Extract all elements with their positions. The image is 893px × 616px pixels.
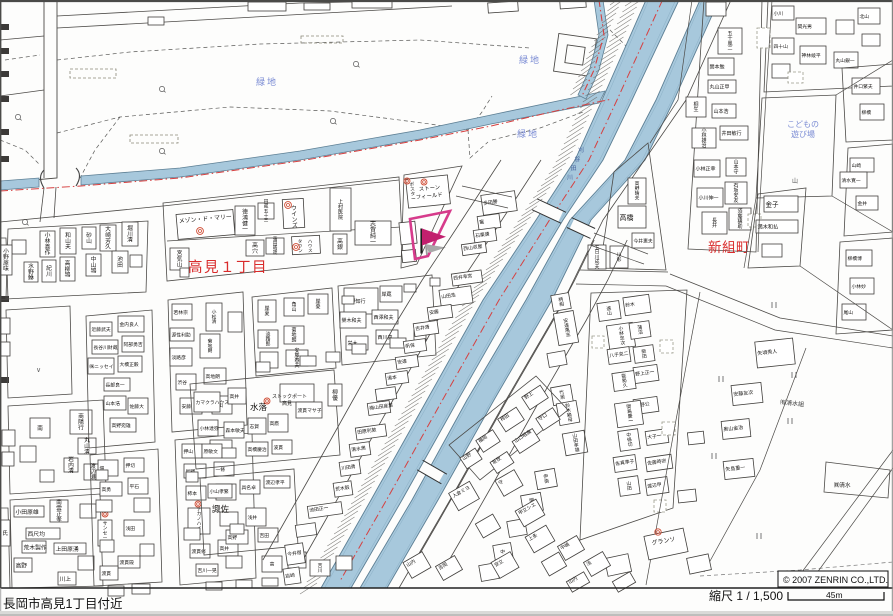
svg-text:蒲田晴筬: 蒲田晴筬 <box>273 235 278 256</box>
svg-text:須藤構助: 須藤構助 <box>737 208 742 230</box>
svg-text:地: 地 <box>530 54 539 65</box>
svg-text:高野晴夫: 高野晴夫 <box>635 180 640 201</box>
svg-text:関光男: 関光男 <box>798 23 813 30</box>
svg-text:若林宗: 若林宗 <box>174 309 189 316</box>
svg-text:緑: 緑 <box>517 128 526 139</box>
svg-text:㈱清水: ㈱清水 <box>834 481 851 489</box>
svg-text:小林喜作: 小林喜作 <box>45 231 51 256</box>
svg-text:長部良一: 長部良一 <box>106 381 125 388</box>
svg-text:浅田: 浅田 <box>126 525 136 532</box>
svg-text:高穴: 高穴 <box>252 241 258 255</box>
svg-text:波貫: 波貫 <box>274 444 284 451</box>
svg-text:金内良人: 金内良人 <box>120 321 139 328</box>
svg-text:長谷川財蔵: 長谷川財蔵 <box>94 344 118 351</box>
svg-text:近藤武夫: 近藤武夫 <box>92 326 111 333</box>
svg-text:小川: 小川 <box>774 10 784 17</box>
svg-text:柳橋: 柳橋 <box>862 109 872 116</box>
svg-text:神林綾平: 神林綾平 <box>802 52 821 59</box>
svg-text:石坂安友: 石坂安友 <box>733 183 738 204</box>
svg-text:山崎: 山崎 <box>852 162 862 169</box>
svg-text:柳優: 柳優 <box>332 388 338 402</box>
svg-text:井田敏行: 井田敏行 <box>722 130 742 137</box>
svg-text:和山夫: 和山夫 <box>65 231 71 251</box>
svg-text:岩内清: 岩内清 <box>68 455 74 475</box>
svg-text:丸山銀一: 丸山銀一 <box>836 57 855 64</box>
svg-text:柳橋博: 柳橋博 <box>848 255 863 262</box>
svg-text:山本浩: 山本浩 <box>106 400 121 407</box>
svg-text:北山: 北山 <box>860 13 870 20</box>
svg-text:岸憂: 岸憂 <box>315 298 320 310</box>
svg-text:荒木製作: 荒木製作 <box>24 543 47 551</box>
svg-text:五日川成夫: 五日川成夫 <box>595 245 600 270</box>
svg-text:高野: 高野 <box>16 561 28 569</box>
svg-text:満木和払: 満木和払 <box>758 223 779 231</box>
svg-text:渋谷: 渋谷 <box>178 379 188 386</box>
svg-text:安藤春夫: 安藤春夫 <box>294 347 299 369</box>
svg-text:尾山: 尾山 <box>844 309 854 316</box>
svg-text:菊地朗: 菊地朗 <box>291 327 296 344</box>
svg-text:上村医院: 上村医院 <box>338 197 344 221</box>
svg-text:渡貫マサ子: 渡貫マサ子 <box>298 407 322 414</box>
svg-text:桐生: 桐生 <box>693 101 698 113</box>
svg-text:吉田: 吉田 <box>260 533 270 539</box>
svg-text:小林達弥: 小林達弥 <box>200 425 219 432</box>
svg-text:阿部勇吉: 阿部勇吉 <box>124 341 143 348</box>
svg-text:岸蔵: 岸蔵 <box>382 291 392 298</box>
svg-text:榮木和夫: 榮木和夫 <box>342 317 362 324</box>
svg-text:高井: 高井 <box>220 545 230 552</box>
svg-text:上田原湧: 上田原湧 <box>56 545 79 553</box>
svg-text:金井: 金井 <box>858 200 868 207</box>
svg-text:高橋慶治: 高橋慶治 <box>248 446 267 453</box>
svg-text:高銀: 高銀 <box>337 237 343 251</box>
svg-text:高鷹: 高鷹 <box>270 420 280 427</box>
svg-text:志賀: 志賀 <box>250 423 260 430</box>
svg-text:渡貫殿: 渡貫殿 <box>120 559 135 566</box>
svg-text:高地朗: 高地朗 <box>206 373 221 380</box>
svg-text:小林妙: 小林妙 <box>852 283 867 290</box>
svg-text:淡路郎: 淡路郎 <box>265 332 270 348</box>
svg-text:緑: 緑 <box>256 76 265 87</box>
svg-text:ストックポート: ストックポート <box>272 393 307 400</box>
svg-text:高見: 高見 <box>282 400 292 407</box>
svg-text:川上: 川上 <box>60 575 72 583</box>
svg-text:小田原雄: 小田原雄 <box>16 508 39 516</box>
svg-text:安藤: 安藤 <box>182 403 192 410</box>
svg-text:小林正幸: 小林正幸 <box>696 166 716 173</box>
svg-text:小川伸一: 小川伸一 <box>699 195 719 202</box>
svg-text:柿本: 柿本 <box>188 490 198 497</box>
svg-text:清水寛一: 清水寛一 <box>842 177 861 184</box>
svg-text:高: 高 <box>270 560 275 567</box>
svg-text:小山孝繁: 小山孝繁 <box>210 488 229 495</box>
svg-text:紀川: 紀川 <box>46 264 52 278</box>
svg-text:関本勉: 関本勉 <box>710 64 725 71</box>
svg-text:南雲正孝: 南雲正孝 <box>56 498 62 523</box>
svg-text:高野: 高野 <box>228 534 238 541</box>
svg-text:岸夏: 岸夏 <box>264 305 269 317</box>
svg-text:商陽行: 商陽行 <box>78 412 84 432</box>
svg-text:高野宛雄: 高野宛雄 <box>112 422 131 429</box>
svg-text:押切: 押切 <box>126 462 136 469</box>
svg-text:押山: 押山 <box>184 448 194 455</box>
svg-text:平石: 平石 <box>130 484 140 490</box>
svg-text:氏: 氏 <box>2 529 8 537</box>
svg-text:水野鮴: 水野鮴 <box>28 262 34 282</box>
svg-text:大橋正毅: 大橋正毅 <box>120 361 139 368</box>
svg-text:宮気山: 宮気山 <box>177 249 183 269</box>
svg-text:円蔵五十三: 円蔵五十三 <box>264 199 269 222</box>
svg-text:山本守: 山本守 <box>733 159 738 176</box>
svg-text:渡貫: 渡貫 <box>102 570 112 577</box>
svg-text:堀川清: 堀川清 <box>127 224 133 244</box>
svg-text:西尺均: 西尺均 <box>28 530 46 538</box>
svg-text:五十嵐二: 五十嵐二 <box>727 31 732 52</box>
svg-text:渡辺孝平: 渡辺孝平 <box>266 479 285 486</box>
svg-text:菊地朗: 菊地朗 <box>208 338 213 355</box>
svg-text:カマクラハウス: カマクラハウス <box>196 399 230 406</box>
svg-text:こどもの: こどもの <box>787 120 819 129</box>
svg-text:地: 地 <box>267 76 276 87</box>
svg-text:今井憲夫: 今井憲夫 <box>634 237 653 244</box>
svg-text:井口繁夫: 井口繁夫 <box>854 83 873 90</box>
svg-text:西澤和夫: 西澤和夫 <box>374 314 394 321</box>
svg-text:砂山: 砂山 <box>86 231 92 245</box>
svg-text:小松清: 小松清 <box>212 309 217 326</box>
svg-text:高橋: 高橋 <box>620 213 634 222</box>
svg-text:長井: 長井 <box>712 218 717 229</box>
svg-text:山本浩: 山本浩 <box>714 108 729 115</box>
svg-text:志賀純一: 志賀純一 <box>370 220 376 246</box>
svg-text:徳鴻健一: 徳鴻健一 <box>242 208 248 233</box>
svg-text:金子: 金子 <box>766 200 780 209</box>
svg-text:南: 南 <box>37 424 43 432</box>
svg-text:淡路彦: 淡路彦 <box>172 354 187 361</box>
svg-text:遊び場: 遊び場 <box>791 129 815 139</box>
svg-text:高井: 高井 <box>230 393 240 400</box>
svg-text:山: 山 <box>792 177 798 185</box>
svg-text:具名卓: 具名卓 <box>242 484 257 491</box>
svg-text:縮尺 1 / 1,500: 縮尺 1 / 1,500 <box>709 588 783 603</box>
svg-text:高勇: 高勇 <box>102 486 112 493</box>
svg-text:池田: 池田 <box>117 255 123 269</box>
svg-text:地: 地 <box>528 128 537 139</box>
svg-text:長岡市高見1丁目付近: 長岡市高見1丁目付近 <box>3 596 123 611</box>
svg-text:佐藤大: 佐藤大 <box>130 403 145 410</box>
svg-text:源性利助: 源性利助 <box>172 331 191 338</box>
svg-text:吉川一晃: 吉川一晃 <box>198 568 217 574</box>
svg-text:㈱ニッセイ: ㈱ニッセイ <box>90 363 114 370</box>
svg-text:緑: 緑 <box>519 54 528 65</box>
svg-text:吉川: 吉川 <box>318 563 323 574</box>
svg-text:中山鴇: 中山鴇 <box>91 255 97 275</box>
svg-text:大崎芳久: 大崎芳久 <box>105 225 111 250</box>
svg-text:原敏文: 原敏文 <box>204 448 219 455</box>
svg-text:森本敏夫: 森本敏夫 <box>226 427 245 434</box>
svg-text:四十山: 四十山 <box>774 43 789 50</box>
svg-text:高柳鴇: 高柳鴇 <box>65 259 71 279</box>
svg-text:浅井: 浅井 <box>248 514 258 521</box>
svg-text:小野原味: 小野原味 <box>3 247 9 272</box>
svg-text:新組町: 新組町 <box>708 240 750 255</box>
svg-text:丸山正甲: 丸山正甲 <box>710 84 730 91</box>
svg-text:45m: 45m <box>826 590 843 600</box>
svg-text:角山: 角山 <box>291 301 296 313</box>
svg-text:諏佐: 諏佐 <box>212 504 230 514</box>
svg-text:高見１丁目: 高見１丁目 <box>188 259 268 276</box>
svg-text:∨: ∨ <box>36 367 41 374</box>
svg-text:小林雄治: 小林雄治 <box>701 127 706 149</box>
svg-text:© 2007 ZENRIN CO.,LTD.: © 2007 ZENRIN CO.,LTD. <box>783 575 888 585</box>
